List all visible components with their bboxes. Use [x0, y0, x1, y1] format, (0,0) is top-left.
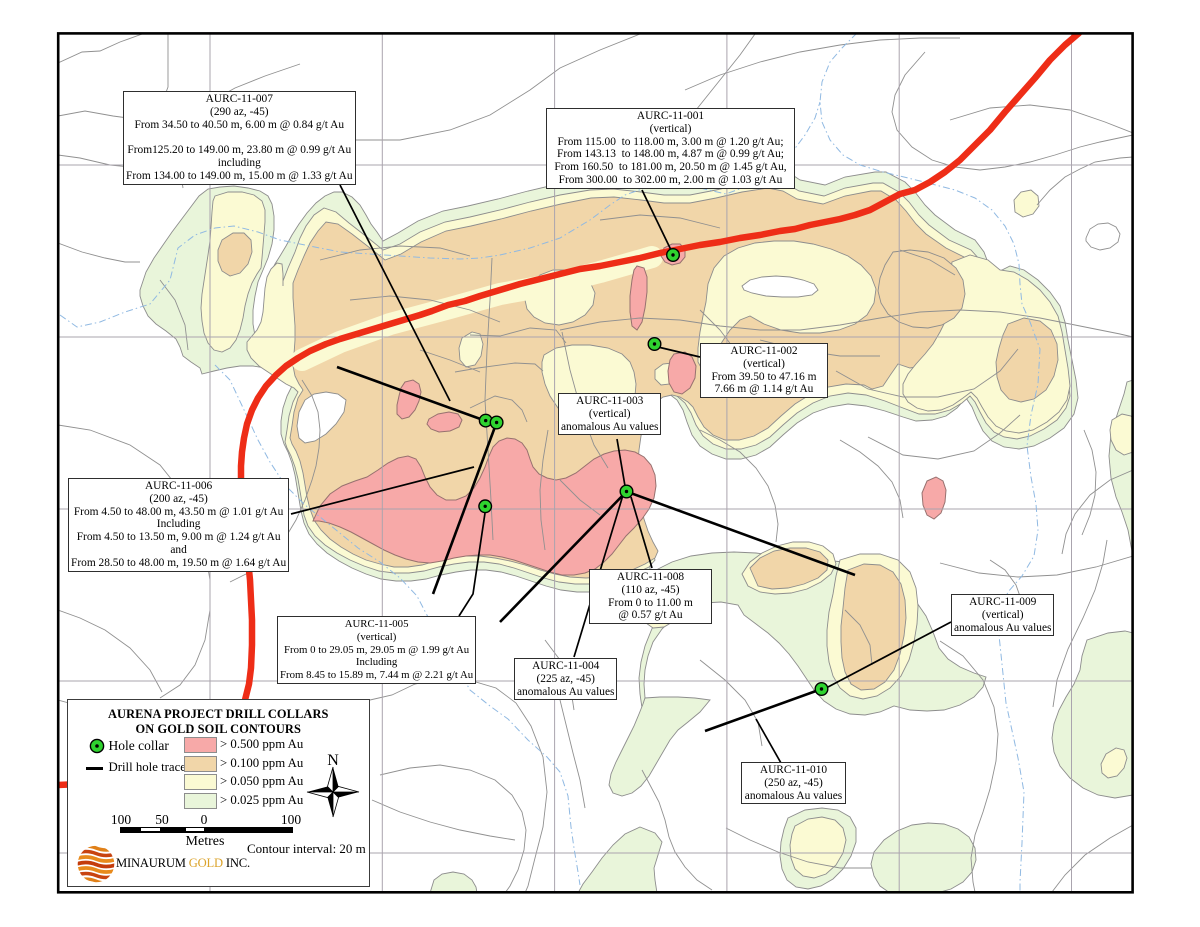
svg-text:N: N	[327, 752, 339, 769]
